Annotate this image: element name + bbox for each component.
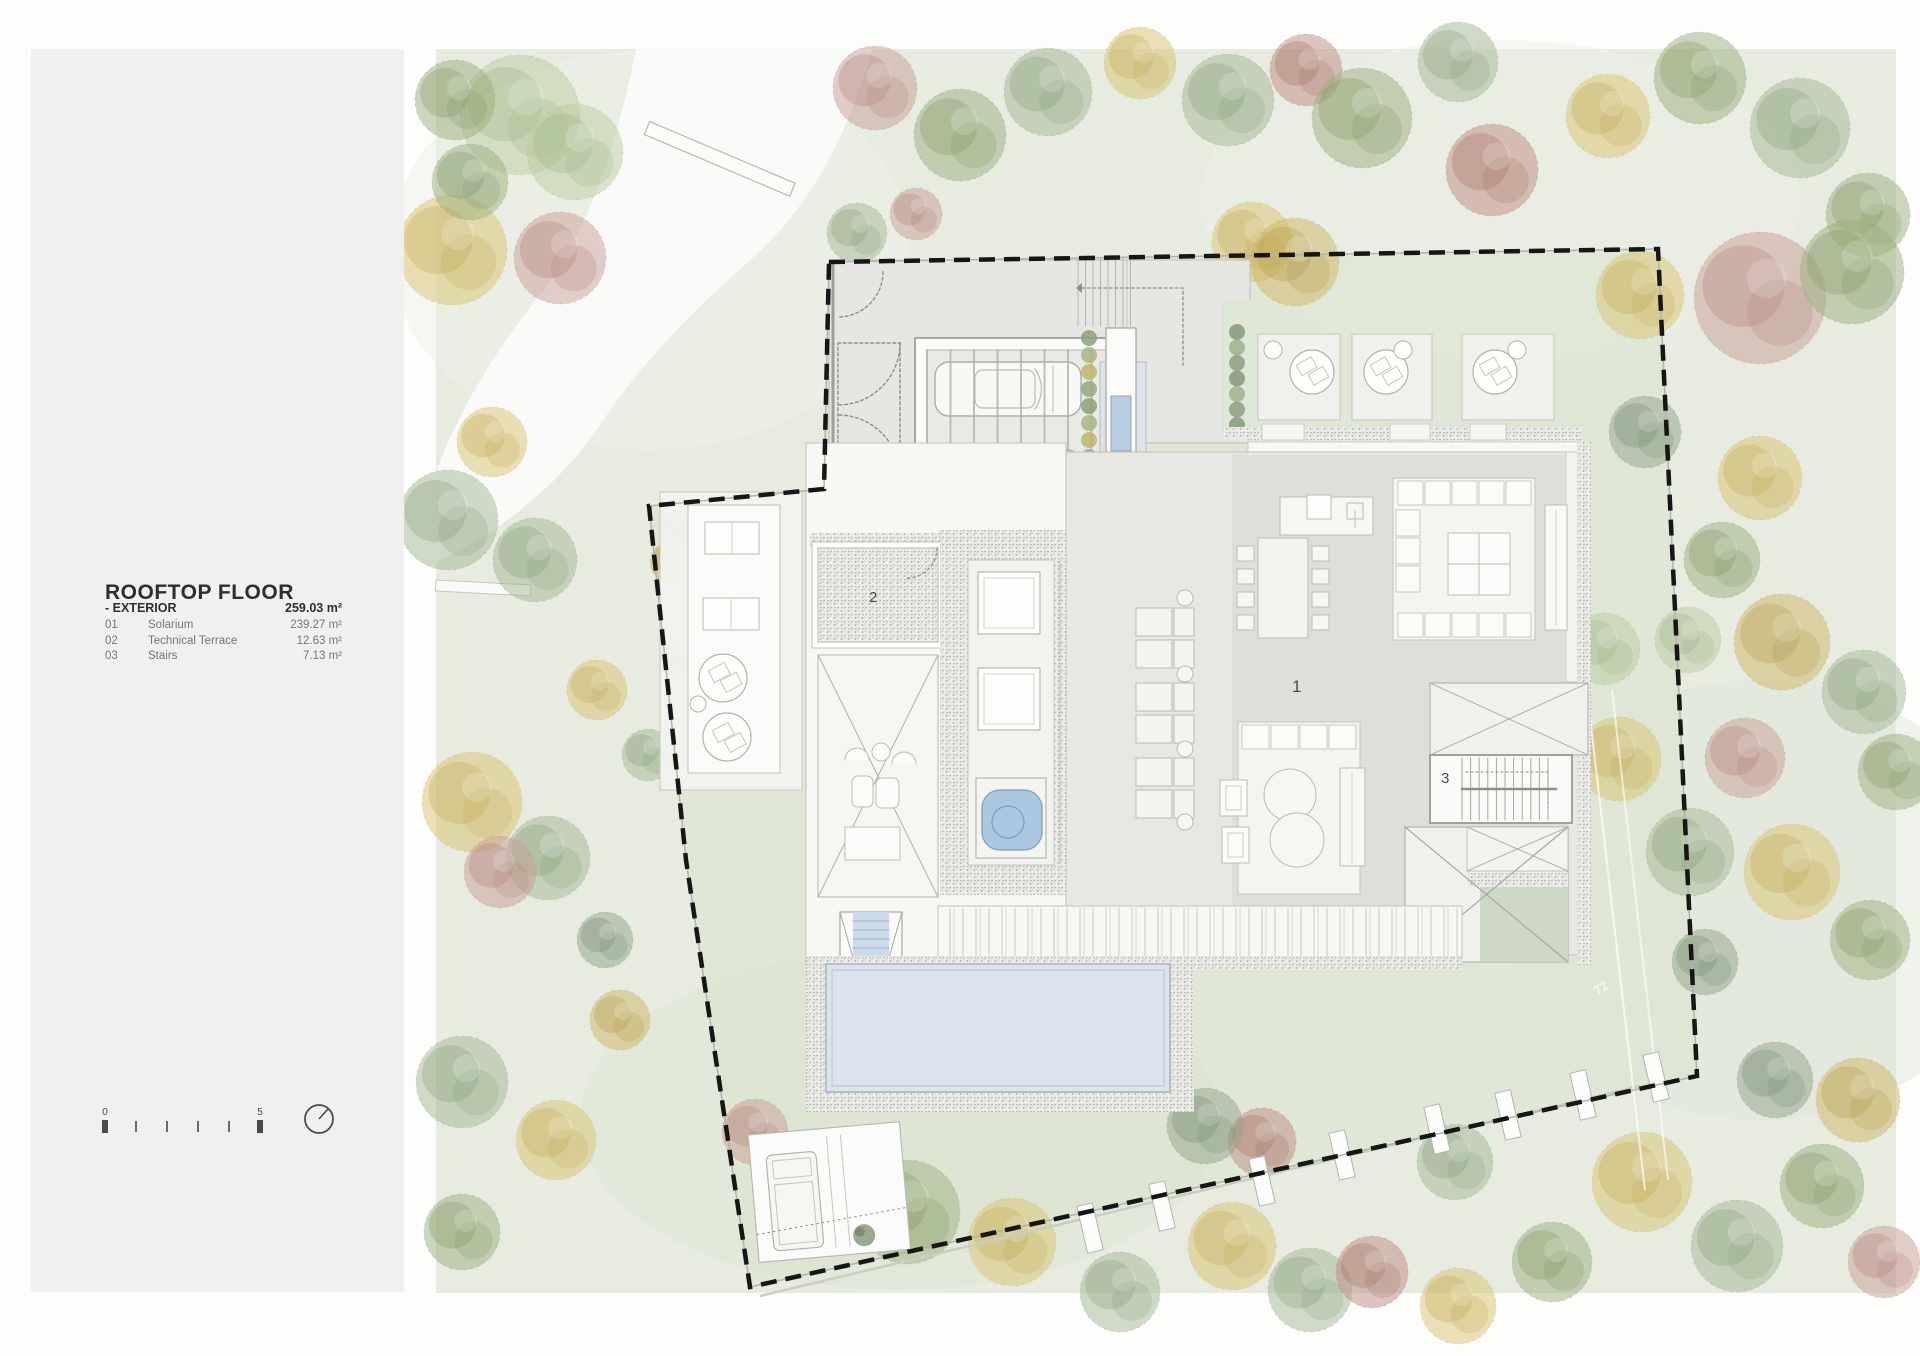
- tree: [1251, 218, 1339, 306]
- tree: [833, 46, 917, 130]
- tree: [1566, 74, 1650, 158]
- timber-deck: [938, 906, 1462, 958]
- tree: [1780, 1144, 1864, 1228]
- tree: [1182, 54, 1274, 146]
- scale-tick: [135, 1121, 137, 1132]
- tree: [1816, 1058, 1900, 1142]
- technical-terrace: [818, 548, 938, 642]
- shrub: [1081, 415, 1097, 431]
- shrub: [1229, 386, 1245, 402]
- legend-row: 02Technical Terrace12.63 m²: [105, 634, 342, 650]
- legend-cell: 12.63 m²: [297, 634, 342, 650]
- tree: [1848, 1226, 1920, 1298]
- tree: [1004, 48, 1092, 136]
- shrub: [1229, 371, 1245, 387]
- legend-row: 03Stairs7.13 m²: [105, 649, 342, 665]
- tree: [457, 407, 527, 477]
- tree: [424, 1194, 500, 1270]
- tree: [415, 60, 495, 140]
- tree: [590, 990, 650, 1050]
- scale-tick: [102, 1120, 108, 1133]
- tree: [567, 660, 627, 720]
- floor-plan-sheet: 1 2 3 72 ROOFTOP FLOOR - EXTERIOR 259.03…: [0, 0, 1920, 1356]
- tree: [827, 203, 887, 263]
- tree: [1654, 32, 1746, 124]
- shrub: [1081, 330, 1097, 346]
- shrub: [1081, 364, 1097, 380]
- scale-end-label: 5: [257, 1107, 263, 1118]
- skylight-x: [1430, 683, 1588, 755]
- legend-cell: Solarium: [148, 618, 290, 634]
- tree: [464, 836, 536, 908]
- round-daybed: [703, 713, 751, 761]
- tree: [514, 212, 606, 304]
- west-wing: [806, 443, 1066, 965]
- pool-water: [826, 964, 1170, 1092]
- legend-section-value: 259.03 m²: [285, 601, 342, 615]
- stairs: [1430, 755, 1572, 823]
- daybed-pad: [1462, 334, 1554, 420]
- tree: [1691, 1200, 1783, 1292]
- garden-lounger-pad: [748, 1122, 911, 1263]
- tree: [1188, 1202, 1276, 1290]
- tree: [914, 89, 1006, 181]
- legend-panel: ROOFTOP FLOOR - EXTERIOR 259.03 m² 01Sol…: [31, 49, 404, 1292]
- outdoor-kitchen: [1280, 495, 1373, 535]
- tree: [1750, 78, 1850, 178]
- tree: [1684, 522, 1760, 598]
- tree: [1734, 594, 1830, 690]
- legend-cell: Technical Terrace: [148, 634, 297, 650]
- tree: [1104, 27, 1176, 99]
- sun-loungers: [1136, 590, 1194, 830]
- scale-tick: [257, 1120, 263, 1133]
- label-solarium: 1: [1292, 677, 1301, 696]
- tree: [1080, 1252, 1160, 1332]
- shrub: [1081, 347, 1097, 363]
- tree: [1596, 251, 1684, 339]
- car: [935, 362, 1081, 416]
- scale-tick: [197, 1121, 199, 1132]
- scale-start-label: 0: [102, 1107, 108, 1118]
- tree: [1420, 1268, 1496, 1344]
- skylight-glass: [1111, 396, 1131, 451]
- tree: [1446, 124, 1538, 216]
- shrub: [1229, 355, 1245, 371]
- tree: [1312, 68, 1412, 168]
- pool: [806, 956, 1194, 1112]
- label-technical-terrace: 2: [869, 589, 877, 606]
- area-legend: - EXTERIOR 259.03 m² 01Solarium239.27 m²…: [105, 601, 342, 665]
- scale-tick: [166, 1121, 168, 1132]
- legend-section-label: - EXTERIOR: [105, 601, 177, 615]
- tree: [1592, 1132, 1692, 1232]
- legend-cell: 239.27 m²: [290, 618, 342, 634]
- shrub: [1229, 402, 1245, 418]
- tree: [1672, 929, 1738, 995]
- legend-row: 01Solarium239.27 m²: [105, 618, 342, 634]
- pergola-dining: [818, 655, 938, 897]
- north-arrow-icon: [299, 1099, 339, 1139]
- daybed-pad: [1258, 334, 1340, 420]
- legend-cell: 03: [105, 649, 148, 665]
- legend-cell: 01: [105, 618, 148, 634]
- legend-cell: 02: [105, 634, 148, 650]
- tree: [577, 912, 633, 968]
- spa-deck: [968, 560, 1060, 865]
- tree: [1512, 1222, 1592, 1302]
- shrub: [1229, 340, 1245, 356]
- tree: [1800, 220, 1904, 324]
- tree: [527, 104, 623, 200]
- shrub: [1081, 398, 1097, 414]
- tree: [516, 1100, 596, 1180]
- tree: [398, 470, 498, 570]
- label-stairs: 3: [1441, 770, 1449, 787]
- lounge-sofa-b: [1220, 722, 1365, 894]
- tree: [416, 1036, 508, 1128]
- shrub: [1081, 432, 1097, 448]
- tree: [1830, 900, 1910, 980]
- legend-cell: Stairs: [148, 649, 303, 665]
- daybed-pads: [1258, 334, 1554, 420]
- tree: [1418, 22, 1498, 102]
- shrub: [1229, 324, 1245, 340]
- tree: [1737, 1042, 1813, 1118]
- legend-header: - EXTERIOR 259.03 m²: [105, 601, 342, 615]
- tree: [1705, 718, 1785, 798]
- daybed-pad: [1352, 334, 1432, 420]
- legend-cell: 7.13 m²: [303, 649, 342, 665]
- tree: [432, 144, 508, 220]
- pool-stair: [840, 912, 902, 958]
- tree: [890, 188, 942, 240]
- tree: [1718, 436, 1802, 520]
- scale-tick: [228, 1121, 230, 1132]
- tree: [1609, 396, 1681, 468]
- tree: [493, 518, 577, 602]
- tree: [1336, 1236, 1408, 1308]
- west-terrace: [660, 492, 802, 790]
- jacuzzi: [982, 790, 1042, 850]
- shrub: [1081, 381, 1097, 397]
- tree: [1744, 824, 1840, 920]
- tree: [1655, 607, 1721, 673]
- tree: [1822, 650, 1906, 734]
